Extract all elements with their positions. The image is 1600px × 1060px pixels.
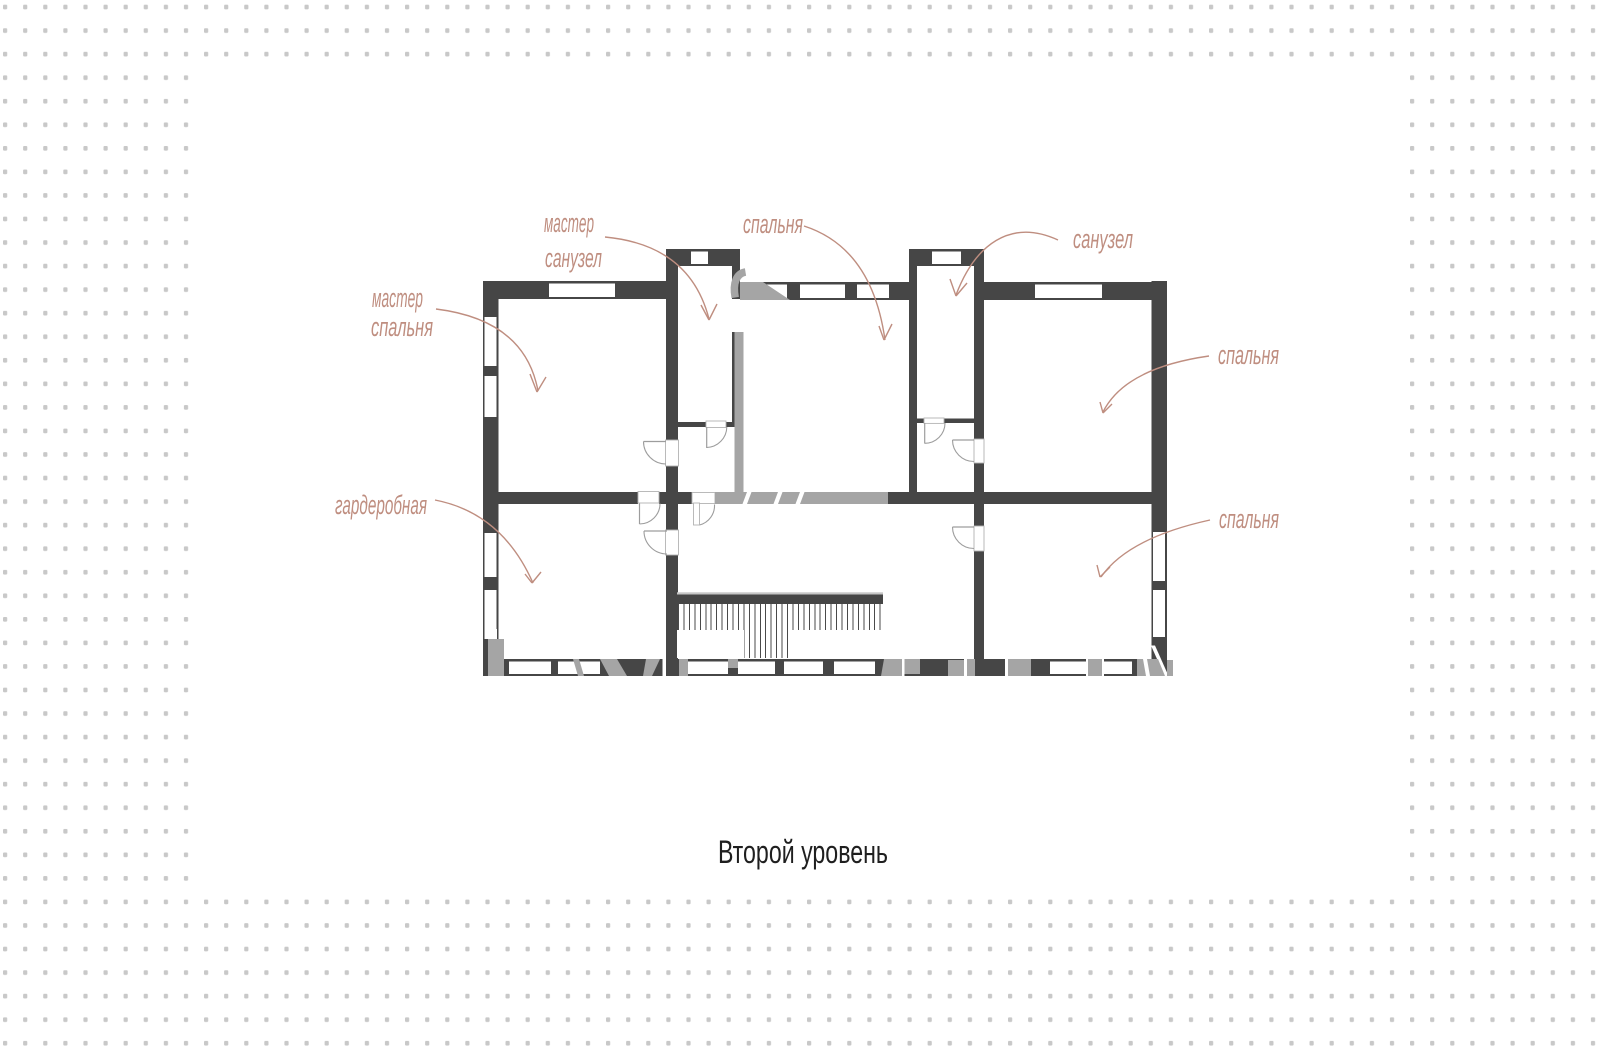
svg-text:Второй уровень: Второй уровень	[718, 834, 888, 870]
svg-text:санузел: санузел	[545, 243, 602, 273]
svg-text:спальня: спальня	[743, 209, 803, 239]
svg-text:мастер: мастер	[372, 283, 423, 313]
svg-text:спальня: спальня	[1218, 340, 1279, 370]
svg-text:спальня: спальня	[1219, 504, 1279, 534]
svg-text:санузел: санузел	[1073, 224, 1133, 254]
svg-text:спальня: спальня	[371, 312, 433, 342]
svg-text:гардеробная: гардеробная	[335, 490, 427, 520]
svg-text:мастер: мастер	[544, 208, 594, 238]
